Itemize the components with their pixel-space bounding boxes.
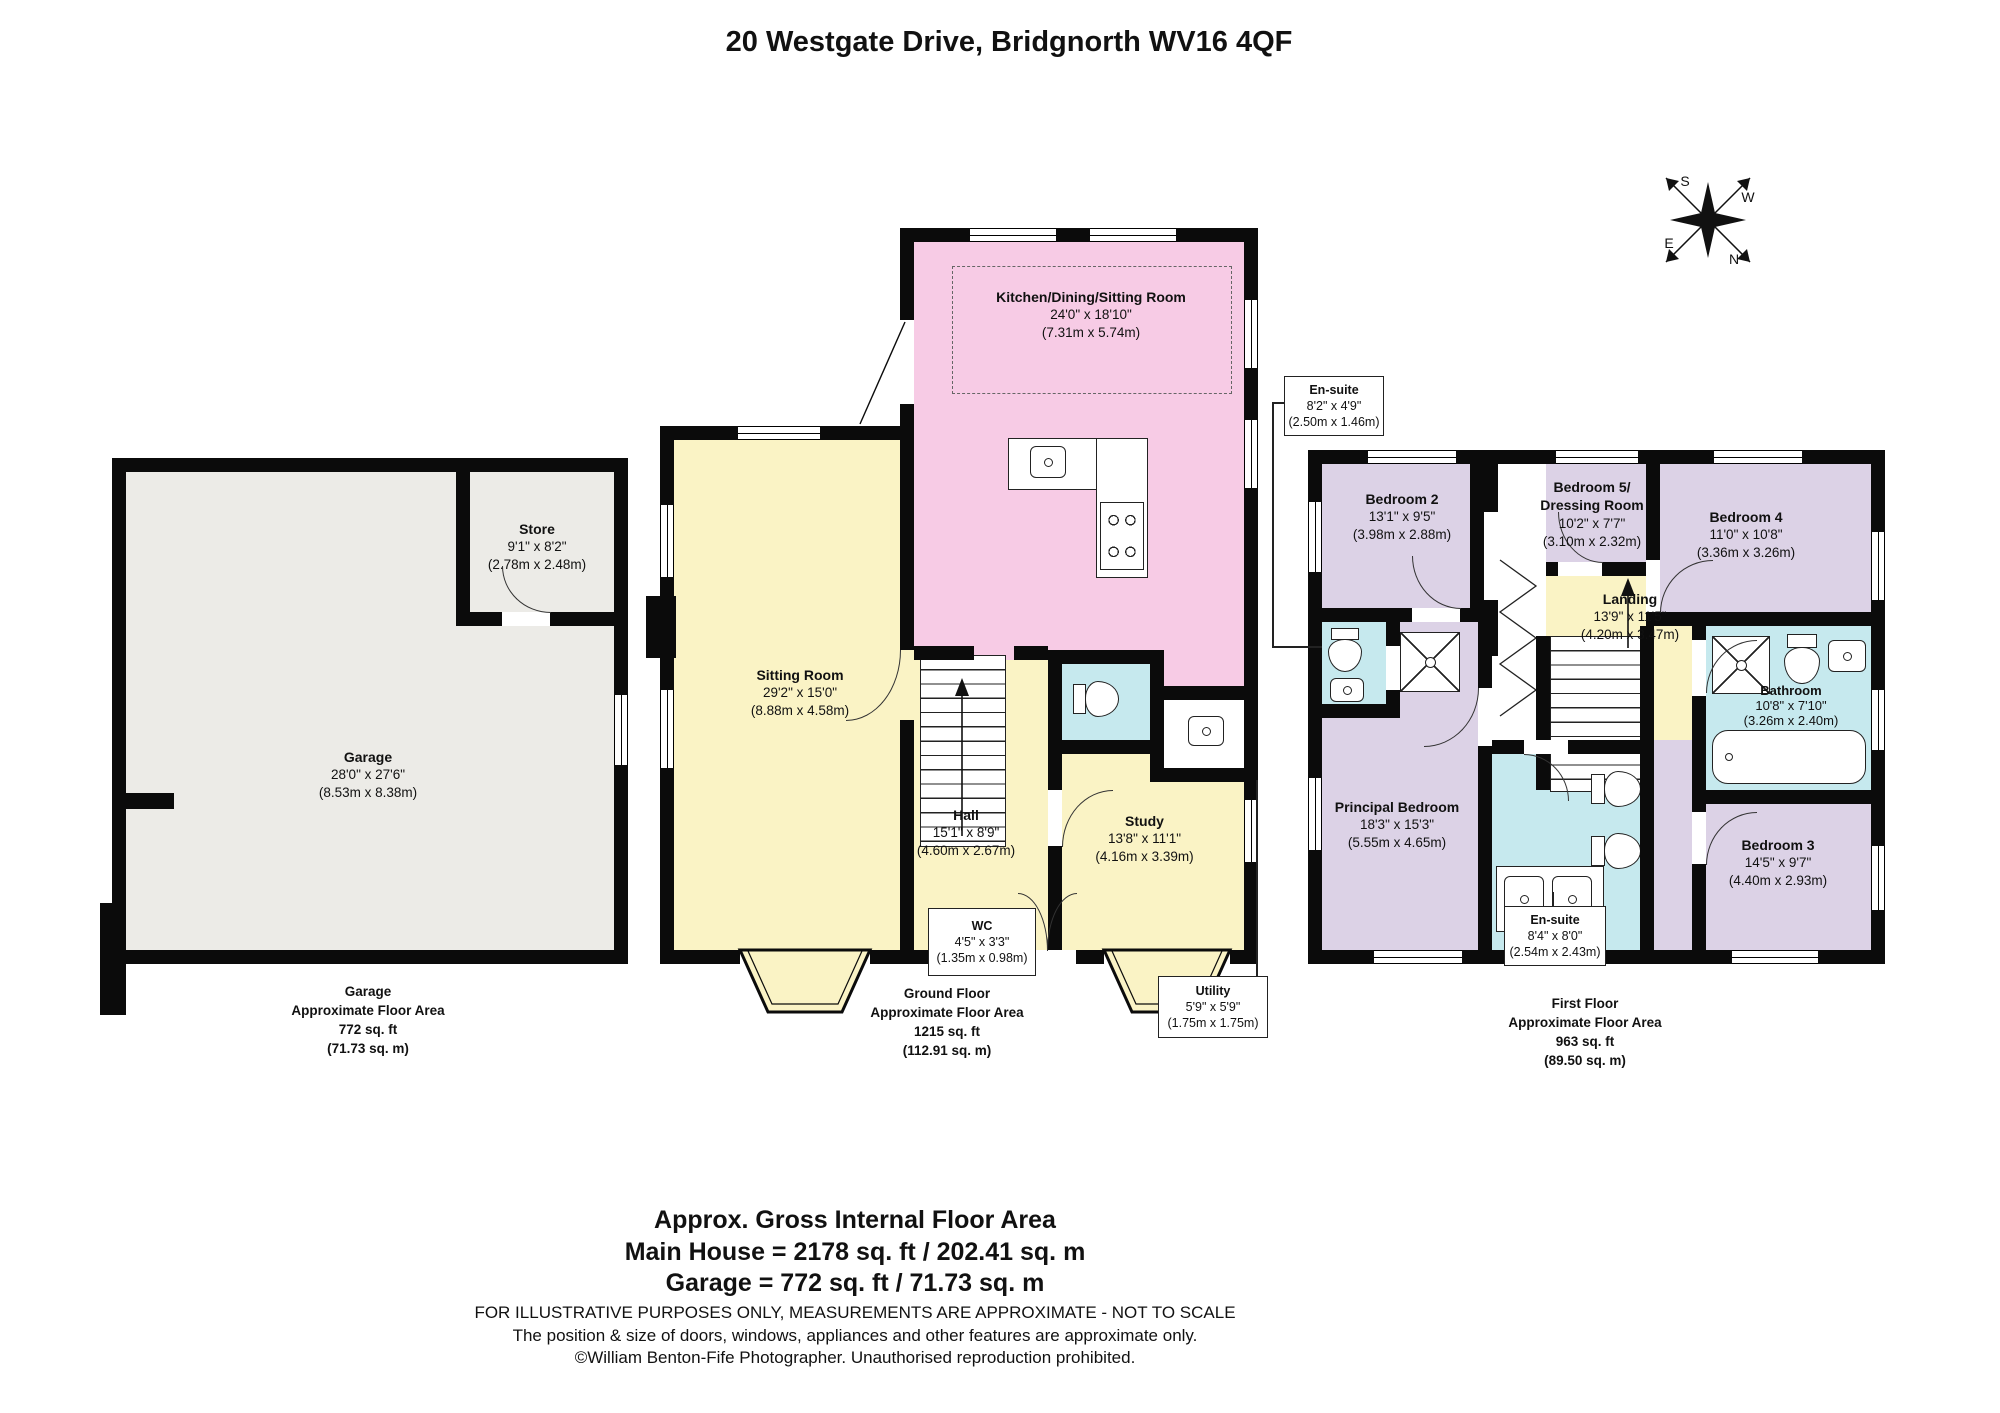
- room-dims: 8'4" x 8'0": [1505, 928, 1605, 944]
- utility-sink-icon: [1188, 716, 1224, 746]
- door-gap: [1558, 562, 1602, 576]
- room-name: Bedroom 3: [1692, 836, 1864, 854]
- summary-main-house: Main House = 2178 sq. ft / 202.41 sq. m: [0, 1238, 1710, 1267]
- toilet-bowl: [1328, 639, 1362, 672]
- room-name: Kitchen/Dining/Sitting Room: [952, 288, 1230, 306]
- label-principal-bedroom: Principal Bedroom 18'3" x 15'3" (5.55m x…: [1312, 798, 1482, 852]
- label-hall: Hall 15'1" x 8'9" (4.60m x 2.67m): [876, 806, 1056, 860]
- room-name: Bedroom 2: [1312, 490, 1492, 508]
- toilet-bowl: [1085, 681, 1120, 717]
- wall: [1230, 950, 1258, 964]
- compass-label-s: S: [1680, 173, 1689, 189]
- wall: [1478, 754, 1492, 964]
- compass-label-e: E: [1664, 235, 1673, 251]
- label-wc: WC 4'5" x 3'3" (1.35m x 0.98m): [928, 908, 1036, 976]
- wall: [1164, 686, 1244, 700]
- floor-area-line: Ground Floor: [827, 985, 1067, 1004]
- room-metric: (5.55m x 4.65m): [1312, 834, 1482, 852]
- floor-area-line: Approximate Floor Area: [248, 1002, 488, 1021]
- wall: [1706, 790, 1871, 804]
- window: [1244, 420, 1258, 488]
- chimney-breast: [646, 596, 676, 658]
- window: [660, 690, 674, 768]
- room-metric: (3.36m x 3.26m): [1656, 544, 1836, 562]
- window: [1556, 450, 1638, 464]
- label-sitting-room: Sitting Room 29'2" x 15'0" (8.88m x 4.58…: [690, 666, 910, 720]
- room-dims: 5'9" x 5'9": [1159, 999, 1267, 1015]
- floor-area-line: 963 sq. ft: [1465, 1033, 1705, 1052]
- ground-floor-area: Ground Floor Approximate Floor Area 1215…: [827, 985, 1067, 1061]
- room-dims: 8'2" x 4'9": [1285, 398, 1383, 414]
- room-name: Dressing Room: [1506, 496, 1678, 514]
- wall: [914, 646, 974, 660]
- label-kitchen: Kitchen/Dining/Sitting Room 24'0" x 18'1…: [952, 288, 1230, 342]
- door-gap: [1478, 688, 1492, 746]
- window: [1368, 450, 1456, 464]
- room-dims: 11'0" x 10'8": [1656, 526, 1836, 544]
- compass-label-w: W: [1741, 189, 1755, 205]
- copyright-line: ©William Benton-Fife Photographer. Unaut…: [0, 1348, 1710, 1368]
- room-metric: (3.10m x 2.32m): [1506, 533, 1678, 551]
- floor-area-line: Garage: [248, 983, 488, 1002]
- room-metric: (4.40m x 2.93m): [1692, 872, 1864, 890]
- room-dims: 24'0" x 18'10": [952, 306, 1230, 324]
- room-dims: 28'0" x 27'6": [248, 766, 488, 784]
- door-gap: [1412, 608, 1460, 622]
- shower-icon: [1400, 632, 1460, 692]
- window: [970, 228, 1056, 242]
- room-metric: (8.88m x 4.58m): [690, 702, 910, 720]
- wall: [1640, 740, 1654, 950]
- wall: [1048, 650, 1062, 754]
- window: [1714, 450, 1802, 464]
- room-dims: 18'3" x 15'3": [1312, 816, 1482, 834]
- summary-garage: Garage = 772 sq. ft / 71.73 sq. m: [0, 1269, 1710, 1298]
- room-metric: (4.16m x 3.39m): [1052, 848, 1237, 866]
- label-utility: Utility 5'9" x 5'9" (1.75m x 1.75m): [1158, 976, 1268, 1038]
- wall: [660, 950, 740, 964]
- toilet-tank: [1073, 684, 1086, 714]
- wall: [112, 458, 628, 472]
- window: [660, 505, 674, 577]
- wall: [1014, 646, 1048, 660]
- room-name: Bathroom: [1712, 684, 1870, 699]
- window: [1871, 690, 1885, 750]
- wall: [1150, 768, 1258, 782]
- toilet-bowl: [1604, 771, 1642, 807]
- window: [1871, 532, 1885, 600]
- bathtub-icon: [1712, 730, 1866, 784]
- door-gap: [502, 612, 550, 626]
- room-name: Bedroom 5/: [1506, 478, 1678, 496]
- room-metric: (8.53m x 8.38m): [248, 784, 488, 802]
- floor-area-line: First Floor: [1465, 995, 1705, 1014]
- sink-icon: [1330, 678, 1364, 702]
- summary-heading: Approx. Gross Internal Floor Area: [0, 1206, 1710, 1235]
- floor-area-line: (112.91 sq. m): [827, 1042, 1067, 1061]
- floorplan-canvas: 20 Westgate Drive, Bridgnorth WV16 4QF S…: [0, 0, 2000, 1413]
- room-name: Sitting Room: [690, 666, 910, 684]
- room-metric: (2.50m x 1.46m): [1285, 414, 1383, 430]
- toilet-icon: [1591, 833, 1641, 869]
- sink-icon: [1828, 640, 1866, 672]
- toilet-icon: [1328, 628, 1362, 672]
- door-gap: [1524, 740, 1568, 754]
- label-ensuite-main: En-suite 8'4" x 8'0" (2.54m x 2.43m): [1504, 906, 1606, 966]
- wall: [1048, 740, 1164, 754]
- room-dims: 29'2" x 15'0": [690, 684, 910, 702]
- room-metric: (4.60m x 2.67m): [876, 842, 1056, 860]
- label-bedroom3: Bedroom 3 14'5" x 9'7" (4.40m x 2.93m): [1692, 836, 1864, 890]
- room-dims: 15'1" x 8'9": [876, 824, 1056, 842]
- floor-area-line: Approximate Floor Area: [827, 1004, 1067, 1023]
- room-dims: 13'8" x 11'1": [1052, 830, 1237, 848]
- room-name: En-suite: [1505, 912, 1605, 928]
- room-metric: (2.78m x 2.48m): [462, 556, 612, 574]
- label-study: Study 13'8" x 11'1" (4.16m x 3.39m): [1052, 812, 1237, 866]
- room-dims: 14'5" x 9'7": [1692, 854, 1864, 872]
- room-metric: (7.31m x 5.74m): [952, 324, 1230, 342]
- wall: [1048, 650, 1164, 664]
- room-dims: 13'1" x 9'5": [1312, 508, 1492, 526]
- kitchen-sink-icon: [1030, 446, 1066, 478]
- window: [738, 426, 820, 440]
- window: [1374, 950, 1462, 964]
- toilet-bowl: [1784, 647, 1820, 685]
- toilet-icon: [1073, 681, 1119, 717]
- disclaimer-line: The position & size of doors, windows, a…: [0, 1326, 1710, 1346]
- label-landing: Landing 13'9" x 11'5" (4.20m x 3.47m): [1540, 590, 1720, 644]
- room-dims: 10'2" x 7'7": [1506, 515, 1678, 533]
- label-garage: Garage 28'0" x 27'6" (8.53m x 8.38m): [248, 748, 488, 802]
- door-gap: [1386, 646, 1400, 690]
- compass-rose: S W N E: [1638, 150, 1778, 290]
- label-connector-line: [1256, 780, 1258, 986]
- toilet-icon: [1784, 634, 1820, 684]
- label-connector-line: [1272, 646, 1322, 648]
- room-metric: (3.98m x 2.88m): [1312, 526, 1492, 544]
- floor-area-line: Approximate Floor Area: [1465, 1014, 1705, 1033]
- wall: [112, 458, 126, 964]
- floor-area-line: 1215 sq. ft: [827, 1023, 1067, 1042]
- room-metric: (2.54m x 2.43m): [1505, 944, 1605, 960]
- disclaimer-line: FOR ILLUSTRATIVE PURPOSES ONLY, MEASUREM…: [0, 1303, 1710, 1323]
- floor-area-line: 772 sq. ft: [248, 1021, 488, 1040]
- wall: [900, 228, 914, 320]
- toilet-icon: [1591, 771, 1641, 807]
- toilet-tank: [1591, 774, 1605, 804]
- label-store: Store 9'1" x 8'2" (2.78m x 2.48m): [462, 520, 612, 574]
- wall: [112, 950, 628, 964]
- room-name: Landing: [1540, 590, 1720, 608]
- label-bathroom: Bathroom 10'8" x 7'10" (3.26m x 2.40m): [1712, 684, 1870, 729]
- room-dims: 4'5" x 3'3": [929, 934, 1035, 950]
- hob-icon: [1100, 502, 1144, 570]
- window: [1871, 846, 1885, 910]
- wall: [900, 228, 1258, 242]
- room-dims: 10'8" x 7'10": [1712, 699, 1870, 714]
- wall-pier: [100, 903, 126, 1015]
- wall: [1322, 704, 1400, 718]
- first-floor-area: First Floor Approximate Floor Area 963 s…: [1465, 995, 1705, 1071]
- label-bedroom4: Bedroom 4 11'0" x 10'8" (3.36m x 3.26m): [1656, 508, 1836, 562]
- window: [1732, 950, 1818, 964]
- wall-pier: [126, 793, 174, 809]
- compass-label-n: N: [1729, 251, 1739, 267]
- room-metric: (1.35m x 0.98m): [929, 950, 1035, 966]
- room-name: Store: [462, 520, 612, 538]
- wall: [1076, 950, 1104, 964]
- garage-floor-area: Garage Approximate Floor Area 772 sq. ft…: [248, 983, 488, 1059]
- room-name: Garage: [248, 748, 488, 766]
- window: [1090, 228, 1176, 242]
- toilet-bowl: [1604, 833, 1642, 869]
- label-bedroom5: Bedroom 5/ Dressing Room 10'2" x 7'7" (3…: [1506, 478, 1678, 551]
- room-name: WC: [929, 918, 1035, 934]
- room-dims: 13'9" x 11'5": [1540, 608, 1720, 626]
- label-ensuite-top: En-suite 8'2" x 4'9" (2.50m x 1.46m): [1284, 376, 1384, 436]
- window: [1244, 300, 1258, 368]
- staircase-first: [1550, 636, 1642, 792]
- patio-door-line: [860, 322, 905, 424]
- room-metric: (3.26m x 2.40m): [1712, 714, 1870, 729]
- room-name: Study: [1052, 812, 1237, 830]
- window: [614, 695, 628, 765]
- label-bedroom2: Bedroom 2 13'1" x 9'5" (3.98m x 2.88m): [1312, 490, 1492, 544]
- room-name: Principal Bedroom: [1312, 798, 1482, 816]
- wall: [900, 426, 914, 650]
- room-name: En-suite: [1285, 382, 1383, 398]
- page-title: 20 Westgate Drive, Bridgnorth WV16 4QF: [0, 26, 2000, 59]
- floor-area-line: (89.50 sq. m): [1465, 1052, 1705, 1071]
- room-name: Utility: [1159, 983, 1267, 999]
- door-gap: [1692, 640, 1706, 696]
- room-name: Hall: [876, 806, 1056, 824]
- room-metric: (4.20m x 3.47m): [1540, 626, 1720, 644]
- room-dims: 9'1" x 8'2": [462, 538, 612, 556]
- floor-area-line: (71.73 sq. m): [248, 1040, 488, 1059]
- label-connector-line: [1272, 402, 1274, 648]
- toilet-tank: [1591, 836, 1605, 866]
- room-metric: (1.75m x 1.75m): [1159, 1015, 1267, 1031]
- toilet-tank: [1787, 634, 1817, 648]
- room-name: Bedroom 4: [1656, 508, 1836, 526]
